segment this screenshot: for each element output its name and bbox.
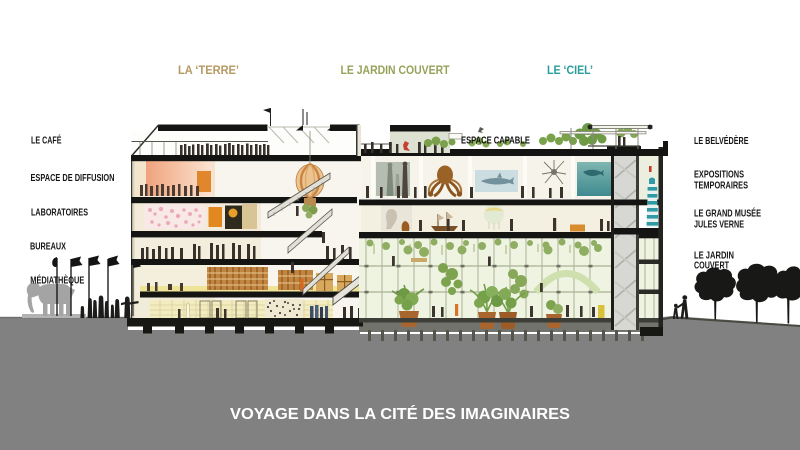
svg-text:EXPOSITIONS: EXPOSITIONS [694, 170, 744, 181]
svg-text:LABORATOIRES: LABORATOIRES [31, 208, 88, 219]
svg-text:LE JARDIN COUVERT: LE JARDIN COUVERT [341, 65, 450, 77]
svg-text:LE BELVÉDÈRE: LE BELVÉDÈRE [694, 134, 749, 147]
svg-text:MÉDIATHÈQUE: MÉDIATHÈQUE [30, 274, 84, 287]
svg-text:LA ‘TERRE’: LA ‘TERRE’ [178, 65, 239, 77]
svg-text:VOYAGE DANS LA CITÉ DES IMAGIN: VOYAGE DANS LA CITÉ DES IMAGINAIRES [230, 406, 570, 423]
svg-text:LE CAFÉ: LE CAFÉ [31, 134, 62, 147]
svg-text:LE ‘CIEL’: LE ‘CIEL’ [547, 65, 593, 77]
svg-text:JULES VERNE: JULES VERNE [694, 220, 744, 231]
svg-text:COUVERT: COUVERT [694, 261, 729, 272]
svg-text:ESPACE CAPABLE: ESPACE CAPABLE [461, 136, 530, 147]
svg-text:LE GRAND MUSÉE: LE GRAND MUSÉE [694, 207, 761, 220]
svg-text:TEMPORAIRES: TEMPORAIRES [694, 181, 748, 192]
svg-text:BUREAUX: BUREAUX [30, 242, 66, 253]
svg-text:ESPACE DE DIFFUSION: ESPACE DE DIFFUSION [31, 173, 115, 184]
